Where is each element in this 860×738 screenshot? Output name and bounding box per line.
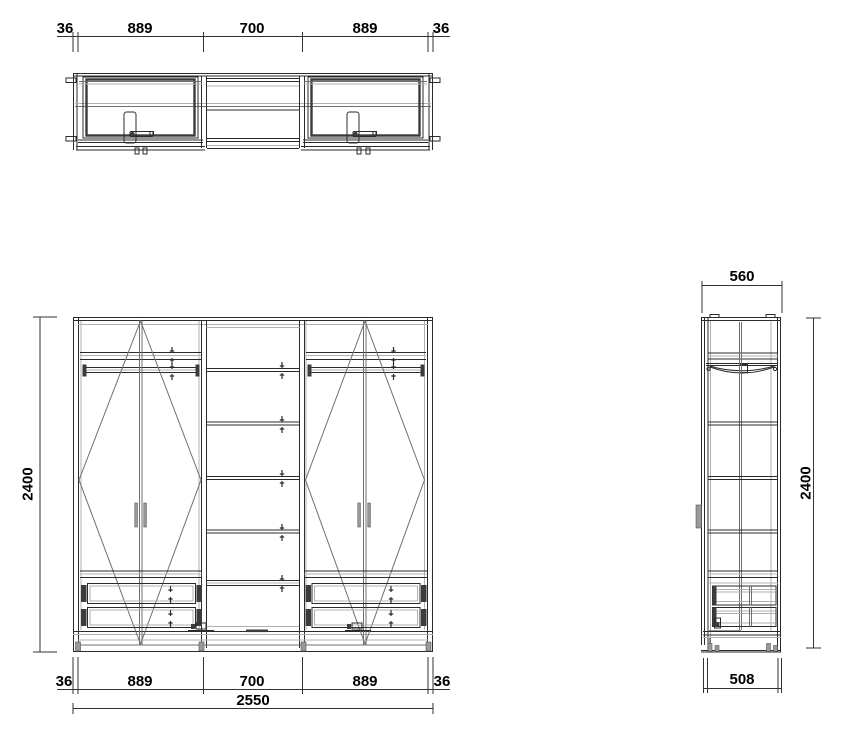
side-foot bbox=[708, 644, 712, 652]
front-right-door-section bbox=[305, 321, 428, 646]
plan-dimension-chain: 36 889 700 889 36 bbox=[57, 20, 450, 52]
side-bottom-dimension: 508 bbox=[704, 658, 782, 693]
plinth-foot bbox=[199, 642, 204, 651]
plinth-detail bbox=[246, 630, 268, 633]
plan-view: 36 889 700 889 36 bbox=[57, 20, 450, 154]
top-cap bbox=[766, 315, 775, 318]
side-foot bbox=[767, 644, 771, 652]
dim-label-plan-700: 700 bbox=[239, 20, 264, 37]
front-height-dimension: 2400 bbox=[20, 317, 58, 652]
plan-foot-tab bbox=[357, 148, 361, 154]
dim-label-side-inner-depth: 508 bbox=[729, 671, 754, 688]
side-door-handle bbox=[696, 505, 702, 528]
drawing-canvas: 36 889 700 889 36 bbox=[0, 0, 860, 738]
dim-label-side-depth: 560 bbox=[729, 268, 754, 285]
top-cap bbox=[710, 315, 719, 318]
dim-label-bottom-889-left: 889 bbox=[127, 673, 152, 690]
side-height-dimension: 2400 bbox=[798, 318, 822, 648]
dim-label-bottom-36-right: 36 bbox=[434, 673, 451, 690]
dim-label-side-height: 2400 bbox=[798, 466, 815, 499]
hanging-rail-left bbox=[83, 365, 200, 377]
side-drawer-1 bbox=[713, 586, 777, 605]
plinth-foot bbox=[301, 642, 306, 651]
plan-hinge-tab bbox=[66, 78, 76, 83]
plan-foot-tab bbox=[366, 148, 370, 154]
front-elevation: 2400 36 889 700 889 36 2550 bbox=[20, 317, 451, 714]
plan-left-door-section bbox=[66, 77, 205, 154]
dim-label-bottom-889-right: 889 bbox=[352, 673, 377, 690]
dim-label-plan-889-left: 889 bbox=[127, 20, 152, 37]
door-handle bbox=[144, 503, 147, 527]
front-left-door-section bbox=[79, 321, 214, 646]
side-body bbox=[696, 315, 781, 653]
wardrobe-technical-drawing: 36 889 700 889 36 bbox=[0, 0, 860, 738]
plan-hinge-tab bbox=[430, 78, 440, 83]
door-handle bbox=[368, 503, 371, 527]
plan-foot-tab bbox=[143, 148, 147, 154]
side-top-dimension: 560 bbox=[702, 268, 782, 313]
plan-right-door-section bbox=[301, 77, 440, 154]
dim-label-bottom-36-left: 36 bbox=[56, 673, 73, 690]
plan-hinge-tab bbox=[430, 137, 440, 142]
side-foot bbox=[774, 646, 778, 652]
front-bottom-dimension-chain: 36 889 700 889 36 2550 bbox=[56, 657, 451, 714]
plinth-foot bbox=[426, 642, 431, 651]
dim-label-total-width: 2550 bbox=[236, 692, 269, 709]
plinth-foot bbox=[76, 642, 81, 651]
door-swing-marks-right bbox=[306, 321, 425, 646]
dim-label-plan-36-left: 36 bbox=[57, 20, 74, 37]
dim-label-front-height: 2400 bbox=[20, 467, 37, 500]
door-handle bbox=[135, 503, 138, 527]
door-swing-marks-left bbox=[79, 321, 201, 646]
dim-label-bottom-700: 700 bbox=[239, 673, 264, 690]
plan-middle-section bbox=[207, 79, 299, 149]
side-drawer-2 bbox=[713, 608, 777, 627]
plan-foot-tab bbox=[135, 148, 139, 154]
door-handle bbox=[358, 503, 361, 527]
dim-label-plan-889-right: 889 bbox=[352, 20, 377, 37]
dim-label-plan-36-right: 36 bbox=[433, 20, 450, 37]
plan-hinge-tab bbox=[66, 137, 76, 142]
side-elevation: 560 bbox=[696, 268, 821, 693]
side-foot bbox=[715, 646, 719, 652]
front-middle-shelf-section bbox=[207, 328, 300, 633]
